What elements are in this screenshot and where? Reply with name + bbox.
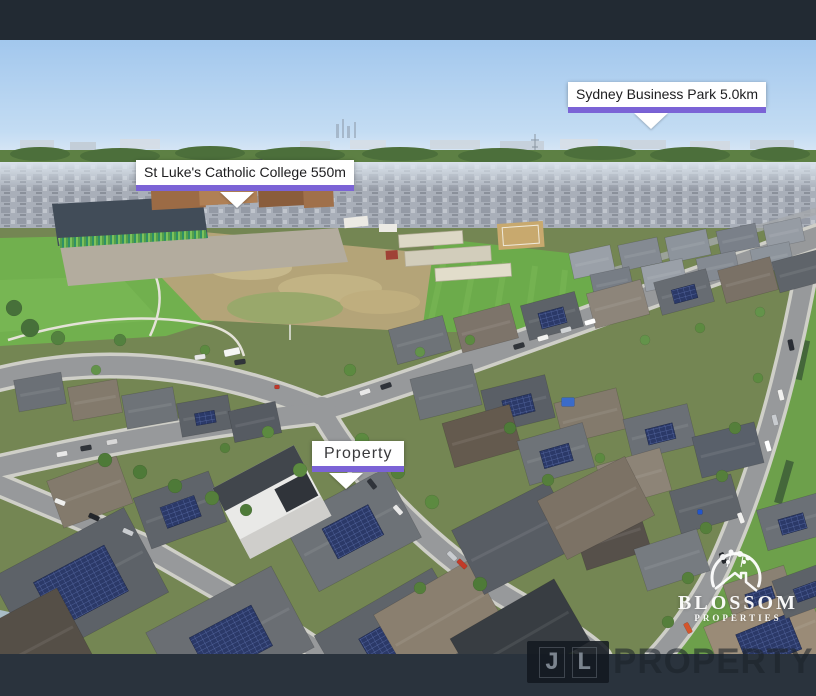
annotation-underline (312, 466, 404, 472)
blossom-logo-icon (683, 543, 793, 593)
blossom-logo-tagline: PROPERTIES (660, 613, 816, 624)
annotation-pointer-icon (329, 473, 363, 489)
annotation-college: St Luke's Catholic College 550m (136, 160, 354, 191)
jl-logo-icon: J L (527, 641, 609, 683)
watermark-letter-l: L (572, 647, 597, 678)
annotation-business-park: Sydney Business Park 5.0km (568, 82, 766, 113)
top-letterbox-bar (0, 0, 816, 40)
annotation-underline (136, 185, 354, 191)
jl-property-watermark: J L PROPERTY (527, 641, 814, 683)
watermark-wordmark: PROPERTY (613, 641, 814, 683)
blossom-logo-name: BLOSSOM (660, 593, 816, 613)
marketing-image-frame: Sydney Business Park 5.0km St Luke's Cat… (0, 0, 816, 696)
annotation-text: Property (312, 441, 404, 466)
annotation-text: Sydney Business Park 5.0km (568, 82, 766, 107)
watermark-letter-j: J (539, 647, 564, 678)
blossom-properties-logo: BLOSSOM PROPERTIES (660, 543, 816, 624)
annotation-pointer-icon (220, 192, 254, 208)
annotation-pointer-icon (634, 113, 668, 129)
annotation-text: St Luke's Catholic College 550m (136, 160, 354, 185)
annotation-property: Property (312, 441, 404, 472)
